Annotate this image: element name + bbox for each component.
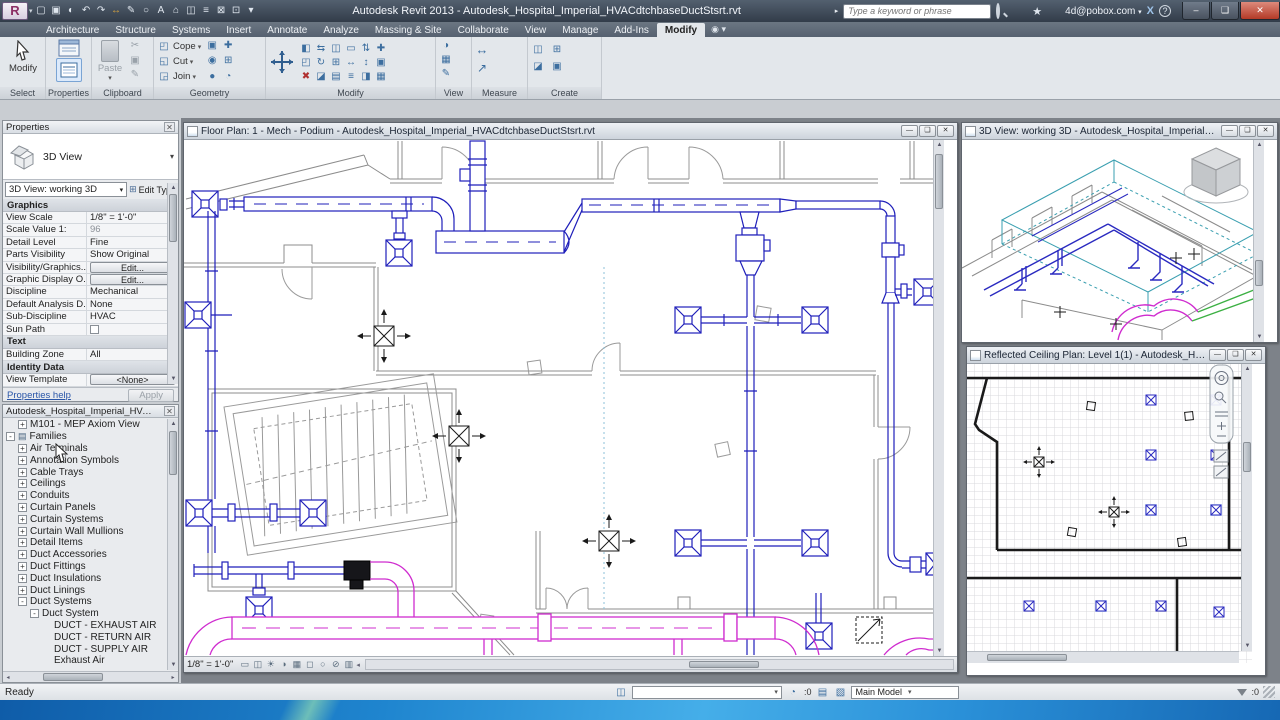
browser-tree-item[interactable]: -Duct System: [3, 608, 178, 620]
walls: [184, 141, 944, 655]
browser-tree-item[interactable]: +Duct Linings: [3, 584, 178, 596]
cut-button[interactable]: ◱Cut▾: [157, 54, 201, 69]
exchange-apps-icon[interactable]: X: [1147, 5, 1154, 17]
browser-tree-item[interactable]: +Duct Insulations: [3, 572, 178, 584]
scroll-thumb[interactable]: [169, 194, 177, 242]
browser-tree-item[interactable]: +Curtain Panels: [3, 502, 178, 514]
glyph-icon[interactable]: ↷: [94, 3, 109, 19]
tab-modify[interactable]: Modify: [657, 23, 705, 37]
panel-label-clipboard[interactable]: Clipboard: [92, 87, 153, 99]
glyph-icon[interactable]: ✎: [128, 68, 142, 81]
key-icon[interactable]: [1014, 5, 1027, 18]
view-control-icons: ▭◫☀◑▦◻○⊘▥: [238, 658, 355, 671]
tree-expander-icon[interactable]: -: [6, 432, 15, 441]
glyph-icon[interactable]: ◔: [221, 70, 235, 83]
desktop-wallpaper: [0, 700, 1280, 720]
resize-grip[interactable]: [1263, 686, 1275, 698]
glyph-icon[interactable]: ⊞: [221, 54, 235, 67]
status-message: Ready: [5, 687, 34, 698]
quick-access-toolbar: R ▾ ▢▣◐↶↷↔✎○A⌂◫≡⊠⊡▾: [0, 2, 259, 20]
three-d-vscrollbar[interactable]: ▲ ▼: [1253, 140, 1264, 342]
panel-measure: ↔ ↗ Measure: [472, 37, 528, 99]
worksets-icon[interactable]: ◫: [614, 686, 628, 699]
browser-tree-item[interactable]: DUCT - EXHAUST AIR: [3, 620, 178, 632]
paste-button[interactable]: Paste ▾: [95, 39, 125, 82]
browser-tree-item[interactable]: +Cable Trays: [3, 466, 178, 478]
scroll-down-arrow[interactable]: ▼: [168, 374, 179, 384]
scroll-up-arrow[interactable]: ▲: [168, 183, 179, 193]
glyph-icon[interactable]: ◐: [64, 3, 79, 19]
glyph-icon[interactable]: ▣: [550, 60, 564, 73]
glyph-icon[interactable]: ⊞: [550, 43, 564, 56]
glyph-icon[interactable]: ⊘: [329, 658, 342, 671]
tab-add-ins[interactable]: Add-Ins: [606, 23, 656, 37]
tree-expander-icon[interactable]: +: [18, 586, 27, 595]
ducts-3d[interactable]: [984, 188, 1214, 296]
tab-collaborate[interactable]: Collaborate: [450, 23, 517, 37]
rcp-canvas[interactable]: ▲ ▼: [967, 364, 1252, 663]
glyph-icon[interactable]: ⊞: [329, 56, 343, 69]
workset-select[interactable]: ▾: [632, 686, 782, 699]
rcp-restore-button[interactable]: ❑: [1227, 349, 1244, 361]
floor-plan-window-buttons: — ❑ ✕: [901, 125, 954, 137]
glyph-icon[interactable]: ▤: [329, 70, 343, 83]
filter-count: :0: [1251, 687, 1259, 697]
ribbon: Modify Select Properties Paste ▾ ✂▣✎ Cli…: [0, 37, 1280, 100]
panel-label-geometry[interactable]: Geometry: [154, 87, 265, 99]
scroll-thumb[interactable]: [1255, 260, 1263, 286]
glyph-icon[interactable]: ◫: [329, 42, 343, 55]
design-option-select[interactable]: Main Model▾: [851, 686, 959, 699]
scroll-up-arrow[interactable]: ▲: [168, 419, 179, 429]
project-browser: Autodesk_Hospital_Imperial_HVACdtchbas..…: [2, 404, 179, 683]
glyph-icon[interactable]: ⇆: [314, 42, 328, 55]
glyph-icon[interactable]: ⇅: [359, 42, 373, 55]
property-row[interactable]: Parts VisibilityShow Original: [3, 249, 178, 261]
d3-minimize-button[interactable]: —: [1221, 125, 1238, 137]
view-scale-button[interactable]: 1/8" = 1'-0": [187, 659, 233, 670]
tab-structure[interactable]: Structure: [107, 23, 164, 37]
scroll-thumb[interactable]: [935, 154, 943, 209]
browser-tree-item[interactable]: +Duct Fittings: [3, 561, 178, 573]
clipboard-small-icons: ✂▣✎: [128, 39, 143, 82]
three-d-window[interactable]: 3D View: working 3D - Autodesk_Hospital_…: [961, 122, 1278, 343]
properties-footer: Properties help Apply: [3, 387, 178, 403]
browser-vscrollbar[interactable]: ▲ ▼: [167, 419, 178, 670]
three-d-drawing: [962, 140, 1264, 342]
families-icon: ▤: [18, 431, 27, 442]
three-d-canvas[interactable]: ▲ ▼: [962, 140, 1264, 342]
tab-view[interactable]: View: [517, 23, 555, 37]
scroll-down-arrow[interactable]: ▼: [1254, 332, 1264, 342]
tree-item-label: M101 - MEP Axiom View: [30, 419, 140, 430]
panel-label-measure[interactable]: Measure: [472, 87, 527, 99]
move-cross-icon[interactable]: [269, 49, 295, 75]
geometry-side-icons: ▣✚◉⊞●◔: [205, 39, 236, 84]
scroll-thumb[interactable]: [169, 431, 177, 475]
browser-tree-item[interactable]: +Conduits: [3, 490, 178, 502]
floor-plan-title-bar[interactable]: Floor Plan: 1 - Mech - Podium - Autodesk…: [184, 123, 957, 140]
property-row[interactable]: Sub-DisciplineHVAC: [3, 311, 178, 323]
glyph-icon[interactable]: ▭: [238, 658, 251, 671]
design-options-icon[interactable]: ▤: [815, 686, 829, 699]
qat-icons: ▢▣◐↶↷↔✎○A⌂◫≡⊠⊡▾: [34, 3, 259, 19]
active-option-icon[interactable]: ▧: [833, 686, 847, 699]
measure-dim-icon[interactable]: ↔: [475, 43, 489, 56]
project-browser-close-icon[interactable]: ✕: [164, 406, 175, 416]
fp-minimize-button[interactable]: —: [901, 125, 918, 137]
browser-tree-item[interactable]: -▤Families: [3, 431, 178, 443]
status-bar: Ready ◫ ▾ ◔ :0 ▤ ▧ Main Model▾ :0: [0, 683, 1280, 700]
star-icon[interactable]: ★: [1032, 5, 1042, 18]
panel-label-select[interactable]: Select: [0, 87, 45, 99]
rcp-minimize-button[interactable]: —: [1209, 349, 1226, 361]
scroll-thumb[interactable]: [1243, 442, 1251, 472]
tree-item-label: Cable Trays: [30, 467, 83, 478]
tree-item-label: Ceilings: [30, 478, 66, 489]
paste-caret: ▾: [108, 74, 112, 82]
scroll-up-arrow[interactable]: ▲: [934, 140, 944, 150]
browser-tree-item[interactable]: -Duct Systems: [3, 596, 178, 608]
property-section[interactable]: Text^: [3, 336, 178, 349]
three-d-window-buttons: — ❑ ✕: [1221, 125, 1274, 137]
scroll-down-arrow[interactable]: ▼: [934, 646, 944, 656]
tab-insert[interactable]: Insert: [218, 23, 259, 37]
tree-item-label: Curtain Systems: [30, 514, 103, 525]
glyph-icon[interactable]: ☀: [264, 658, 277, 671]
glyph-icon[interactable]: ◰: [299, 56, 313, 69]
glyph-icon[interactable]: ◪: [314, 70, 328, 83]
property-row[interactable]: Scale Value 1:96: [3, 224, 178, 236]
instance-selector[interactable]: 3D View: working 3D ▾: [5, 182, 127, 197]
browser-tree-item[interactable]: +Curtain Wall Mullions: [3, 525, 178, 537]
edit-type-icon: ⊞: [129, 184, 137, 195]
property-section[interactable]: Identity Data^: [3, 361, 178, 374]
panel-label-view[interactable]: View: [436, 87, 471, 99]
tree-expander-icon[interactable]: +: [18, 468, 27, 477]
browser-tree-item[interactable]: DUCT - RETURN AIR: [3, 631, 178, 643]
view-cube[interactable]: [1184, 148, 1248, 203]
cope-button[interactable]: ◰Cope▾: [157, 39, 201, 54]
panel-modify: ◧⇆◫▭⇅✚◰↻⊞↔↕▣✖◪▤≡◨▦ Modify: [266, 37, 436, 99]
tree-expander-icon[interactable]: +: [18, 527, 27, 536]
browser-hscrollbar[interactable]: ◂ ▸: [3, 671, 178, 682]
glyph-icon[interactable]: ✎: [439, 67, 453, 80]
edit-button[interactable]: Edit...: [90, 262, 175, 273]
property-grid: Graphics^View Scale1/8" = 1'-0"Scale Val…: [3, 199, 178, 387]
tree-expander-icon[interactable]: +: [18, 479, 27, 488]
join-button[interactable]: ◲Join▾: [157, 69, 201, 84]
search-expand-icon[interactable]: ▸: [835, 7, 839, 15]
app-title-bar: R ▾ ▢▣◐↶↷↔✎○A⌂◫≡⊠⊡▾ Autodesk Revit 2013 …: [0, 0, 1280, 22]
rcp-title-bar[interactable]: Reflected Ceiling Plan: Level 1(1) - Aut…: [967, 347, 1265, 364]
three-d-title: 3D View: working 3D - Autodesk_Hospital_…: [979, 126, 1218, 137]
cope-icon: ◰: [157, 40, 171, 53]
d3-close-button[interactable]: ✕: [1257, 125, 1274, 137]
tree-expander-icon[interactable]: +: [18, 538, 27, 547]
tree-expander-icon[interactable]: +: [18, 420, 27, 429]
panel-properties: Properties: [46, 37, 92, 99]
browser-tree-item[interactable]: +Air Terminals: [3, 443, 178, 455]
scroll-thumb[interactable]: [689, 661, 759, 668]
glyph-icon[interactable]: ⊡: [229, 3, 244, 19]
glyph-icon[interactable]: ▦: [290, 658, 303, 671]
properties-vscrollbar[interactable]: ▲ ▼: [167, 183, 178, 384]
measure-aligned-icon[interactable]: ↗: [475, 62, 489, 75]
floor-plan-window[interactable]: Floor Plan: 1 - Mech - Podium - Autodesk…: [183, 122, 958, 673]
glyph-icon[interactable]: ◫: [184, 3, 199, 19]
floor-plan-vscrollbar[interactable]: ▲ ▼: [933, 140, 944, 656]
glyph-icon[interactable]: ↔: [109, 3, 124, 19]
tree-item-label: DUCT - SUPPLY AIR: [54, 644, 148, 655]
tree-item-label: Duct Accessories: [30, 549, 107, 560]
ribbon-state-toggle[interactable]: ◉ ▾: [705, 22, 732, 37]
edit-button[interactable]: Edit...: [90, 274, 175, 285]
glyph-icon[interactable]: ◑: [439, 39, 453, 52]
tab-systems[interactable]: Systems: [164, 23, 218, 37]
property-row[interactable]: DisciplineMechanical: [3, 286, 178, 298]
glyph-icon[interactable]: ▭: [344, 42, 358, 55]
scroll-left-arrow[interactable]: ◂: [356, 661, 360, 669]
properties-close-icon[interactable]: ✕: [164, 122, 175, 132]
scroll-down-arrow[interactable]: ▼: [1242, 641, 1252, 651]
tab-architecture[interactable]: Architecture: [38, 23, 107, 37]
browser-tree-item[interactable]: +Annotation Symbols: [3, 454, 178, 466]
glyph-icon[interactable]: ▣: [128, 54, 142, 67]
property-row[interactable]: View Template<None>: [3, 374, 178, 386]
rcp-hscrollbar[interactable]: [967, 651, 1239, 663]
user-icon[interactable]: [1047, 5, 1060, 18]
glyph-icon[interactable]: ↔: [344, 56, 358, 69]
tree-expander-icon[interactable]: -: [18, 597, 27, 606]
glyph-icon[interactable]: ✖: [299, 70, 313, 83]
browser-tree-item[interactable]: DUCT - SUPPLY AIR: [3, 643, 178, 655]
glyph-icon[interactable]: ○: [316, 658, 329, 671]
tree-expander-icon[interactable]: -: [30, 609, 39, 618]
glyph-icon[interactable]: ✂: [128, 39, 142, 52]
search-icon[interactable]: [996, 5, 1009, 18]
panel-label-create[interactable]: Create: [528, 87, 601, 99]
cut-icon: ◱: [157, 55, 171, 68]
property-section[interactable]: Graphics^: [3, 199, 178, 212]
ribbon-tab-row: ArchitectureStructureSystemsInsertAnnota…: [0, 22, 1280, 37]
glyph-icon[interactable]: ○: [139, 3, 154, 19]
property-row[interactable]: Building ZoneAll: [3, 349, 178, 361]
space-markers[interactable]: [357, 309, 636, 568]
minimize-button[interactable]: –: [1182, 2, 1210, 20]
tree-expander-icon[interactable]: +: [18, 515, 27, 524]
browser-tree-item[interactable]: +Duct Accessories: [3, 549, 178, 561]
tree-item-label: Duct Insulations: [30, 573, 101, 584]
glyph-icon[interactable]: ▥: [342, 658, 355, 671]
supply-ducts[interactable]: [185, 141, 944, 655]
rcp-title: Reflected Ceiling Plan: Level 1(1) - Aut…: [984, 350, 1206, 361]
panel-label-properties[interactable]: Properties: [46, 87, 91, 99]
panel-view: ◑▦✎ View: [436, 37, 472, 99]
instance-caret-icon[interactable]: ▾: [120, 186, 124, 194]
glyph-icon[interactable]: ≡: [344, 70, 358, 83]
glyph-icon[interactable]: ▢: [34, 3, 49, 19]
instance-selector-value: 3D View: working 3D: [9, 184, 97, 195]
tree-item-label: Annotation Symbols: [30, 455, 119, 466]
glyph-icon[interactable]: ✎: [124, 3, 139, 19]
glyph-icon[interactable]: ⌂: [169, 3, 184, 19]
glyph-icon[interactable]: ▦: [439, 53, 453, 66]
property-row[interactable]: Default Analysis D...None: [3, 299, 178, 311]
floor-plan-hscrollbar[interactable]: [365, 659, 954, 670]
glyph-icon[interactable]: ✚: [374, 42, 388, 55]
browser-tree: +M101 - MEP Axiom View-▤Families+Air Ter…: [3, 418, 178, 670]
view-icons: ◑▦✎: [439, 39, 468, 80]
filter-icon[interactable]: [1237, 689, 1247, 696]
glyph-icon[interactable]: ≡: [199, 3, 214, 19]
tree-expander-icon[interactable]: +: [18, 444, 27, 453]
glyph-icon[interactable]: ▣: [49, 3, 64, 19]
properties-palette-icon: [60, 62, 78, 78]
glyph-icon[interactable]: ◉: [205, 54, 219, 67]
scroll-up-arrow[interactable]: ▲: [1254, 140, 1264, 150]
glyph-icon[interactable]: ◨: [359, 70, 373, 83]
app-title: Autodesk Revit 2013 - Autodesk_Hospital_…: [259, 5, 835, 17]
close-button[interactable]: ✕: [1240, 2, 1280, 20]
tab-massing-site[interactable]: Massing & Site: [367, 23, 450, 37]
properties-header-title: Properties: [6, 122, 49, 133]
status-bar-right: ◫ ▾ ◔ :0 ▤ ▧ Main Model▾ :0: [614, 686, 1275, 699]
tab-analyze[interactable]: Analyze: [315, 23, 367, 37]
scroll-left-arrow[interactable]: ◂: [3, 674, 13, 681]
tree-expander-icon[interactable]: +: [18, 491, 27, 500]
mouse-cursor: [55, 443, 69, 463]
properties-palette: Properties ✕ 3D View ▾ 3D View: working …: [2, 120, 179, 402]
edit-button[interactable]: <None>: [90, 374, 175, 385]
tree-expander-icon[interactable]: +: [18, 550, 27, 559]
modify-icons: ◧⇆◫▭⇅✚◰↻⊞↔↕▣✖◪▤≡◨▦: [299, 42, 388, 83]
tree-expander-icon[interactable]: +: [18, 456, 27, 465]
properties-help-link[interactable]: Properties help: [7, 390, 71, 401]
project-browser-header[interactable]: Autodesk_Hospital_Imperial_HVACdtchbas..…: [3, 405, 178, 418]
glyph-icon[interactable]: ▣: [374, 56, 388, 69]
properties-window-icon[interactable]: [58, 39, 80, 57]
browser-tree-item[interactable]: +M101 - MEP Axiom View: [3, 419, 178, 431]
browser-tree-item[interactable]: Exhaust Air: [3, 655, 178, 667]
scroll-down-arrow[interactable]: ▼: [168, 660, 179, 670]
model-walls: [962, 185, 1264, 340]
search-input[interactable]: [843, 4, 991, 19]
glyph-icon[interactable]: ◧: [299, 42, 313, 55]
tree-item-label: Curtain Panels: [30, 502, 96, 513]
editable-only-icon[interactable]: ◔: [786, 686, 800, 699]
scroll-thumb[interactable]: [43, 673, 103, 681]
tree-item-label: Exhaust Air: [54, 655, 105, 666]
app-menu-caret[interactable]: ▾: [29, 7, 33, 15]
join-icon: ◲: [157, 70, 171, 83]
tree-expander-icon[interactable]: +: [18, 574, 27, 583]
rcp-window-buttons: — ❑ ✕: [1209, 349, 1262, 361]
glyph-icon[interactable]: ⊠: [214, 3, 229, 19]
glyph-icon[interactable]: ●: [205, 70, 219, 83]
rcp-window[interactable]: Reflected Ceiling Plan: Level 1(1) - Aut…: [966, 346, 1266, 676]
editable-count: :0: [804, 687, 812, 697]
glyph-icon[interactable]: ↶: [79, 3, 94, 19]
tree-expander-icon[interactable]: +: [18, 503, 27, 512]
inline-fan-fitting[interactable]: [344, 561, 370, 589]
create-icons: ◫⊞◪▣: [531, 39, 598, 73]
maximize-button[interactable]: ❑: [1211, 2, 1239, 20]
account-name[interactable]: 4d@pobox.com ▾: [1065, 6, 1142, 17]
glyph-icon[interactable]: ◫: [531, 43, 545, 56]
glyph-icon[interactable]: ▣: [205, 39, 219, 52]
three-d-title-bar[interactable]: 3D View: working 3D - Autodesk_Hospital_…: [962, 123, 1277, 140]
glyph-icon[interactable]: ▦: [374, 70, 388, 83]
glyph-icon[interactable]: ↻: [314, 56, 328, 69]
browser-tree-item[interactable]: +Detail Items: [3, 537, 178, 549]
fp-close-button[interactable]: ✕: [937, 125, 954, 137]
properties-toggle-button[interactable]: [56, 58, 82, 82]
apply-button[interactable]: Apply: [128, 389, 174, 402]
property-row[interactable]: Detail LevelFine: [3, 237, 178, 249]
rcp-vscrollbar[interactable]: ▲ ▼: [1241, 364, 1252, 651]
floor-plan-title: Floor Plan: 1 - Mech - Podium - Autodesk…: [201, 126, 898, 137]
tree-item-label: Families: [30, 431, 67, 442]
duct-3d-magenta[interactable]: [1112, 299, 1198, 340]
modify-tool-button[interactable]: Modify: [3, 39, 43, 74]
panel-label-modify[interactable]: Modify: [266, 87, 435, 99]
glyph-icon[interactable]: ✚: [221, 39, 235, 52]
checkbox[interactable]: [90, 325, 99, 334]
floor-plan-view-control-bar: 1/8" = 1'-0" ▭◫☀◑▦◻○⊘▥ ◂: [184, 656, 957, 672]
properties-header[interactable]: Properties ✕: [3, 121, 178, 134]
glyph-icon[interactable]: ◑: [277, 658, 290, 671]
help-icon[interactable]: ?: [1159, 5, 1171, 17]
panel-create: ◫⊞◪▣ Create: [528, 37, 602, 99]
glyph-icon[interactable]: ▾: [244, 3, 259, 19]
scroll-right-arrow[interactable]: ▸: [168, 674, 178, 681]
browser-tree-item[interactable]: +Ceilings: [3, 478, 178, 490]
selection-box[interactable]: [856, 617, 882, 643]
gray-markers: [479, 306, 771, 629]
revit-application-menu[interactable]: R: [2, 2, 28, 20]
type-selector[interactable]: 3D View ▾: [3, 134, 178, 180]
mdi-background: Floor Plan: 1 - Mech - Podium - Autodesk…: [181, 118, 1280, 683]
tree-expander-icon[interactable]: +: [18, 562, 27, 571]
floor-plan-canvas[interactable]: ▲ ▼: [184, 140, 944, 656]
glyph-icon[interactable]: ◫: [251, 658, 264, 671]
tree-item-label: Curtain Wall Mullions: [30, 526, 124, 537]
property-row[interactable]: View Scale1/8" = 1'-0": [3, 212, 178, 224]
browser-tree-item[interactable]: +Curtain Systems: [3, 513, 178, 525]
rcp-close-button[interactable]: ✕: [1245, 349, 1262, 361]
property-row[interactable]: Graphic Display O...Edit...: [3, 274, 178, 286]
tree-item-label: Detail Items: [30, 537, 83, 548]
fp-restore-button[interactable]: ❑: [919, 125, 936, 137]
tab-manage[interactable]: Manage: [554, 23, 606, 37]
glyph-icon[interactable]: A: [154, 3, 169, 19]
property-row[interactable]: Sun Path: [3, 324, 178, 336]
glyph-icon[interactable]: ◻: [303, 658, 316, 671]
d3-restore-button[interactable]: ❑: [1239, 125, 1256, 137]
cursor-icon: [13, 40, 33, 62]
paste-icon: [101, 40, 119, 62]
property-row[interactable]: Visibility/Graphics...Edit...: [3, 262, 178, 274]
scroll-thumb[interactable]: [987, 654, 1067, 661]
tree-item-label: DUCT - EXHAUST AIR: [54, 620, 156, 631]
scroll-up-arrow[interactable]: ▲: [1242, 364, 1252, 374]
markers-3d: [1054, 248, 1200, 330]
glyph-icon[interactable]: ↕: [359, 56, 373, 69]
glyph-icon[interactable]: ◪: [531, 60, 545, 73]
type-selector-caret-icon[interactable]: ▾: [170, 152, 174, 161]
tab-annotate[interactable]: Annotate: [259, 23, 315, 37]
